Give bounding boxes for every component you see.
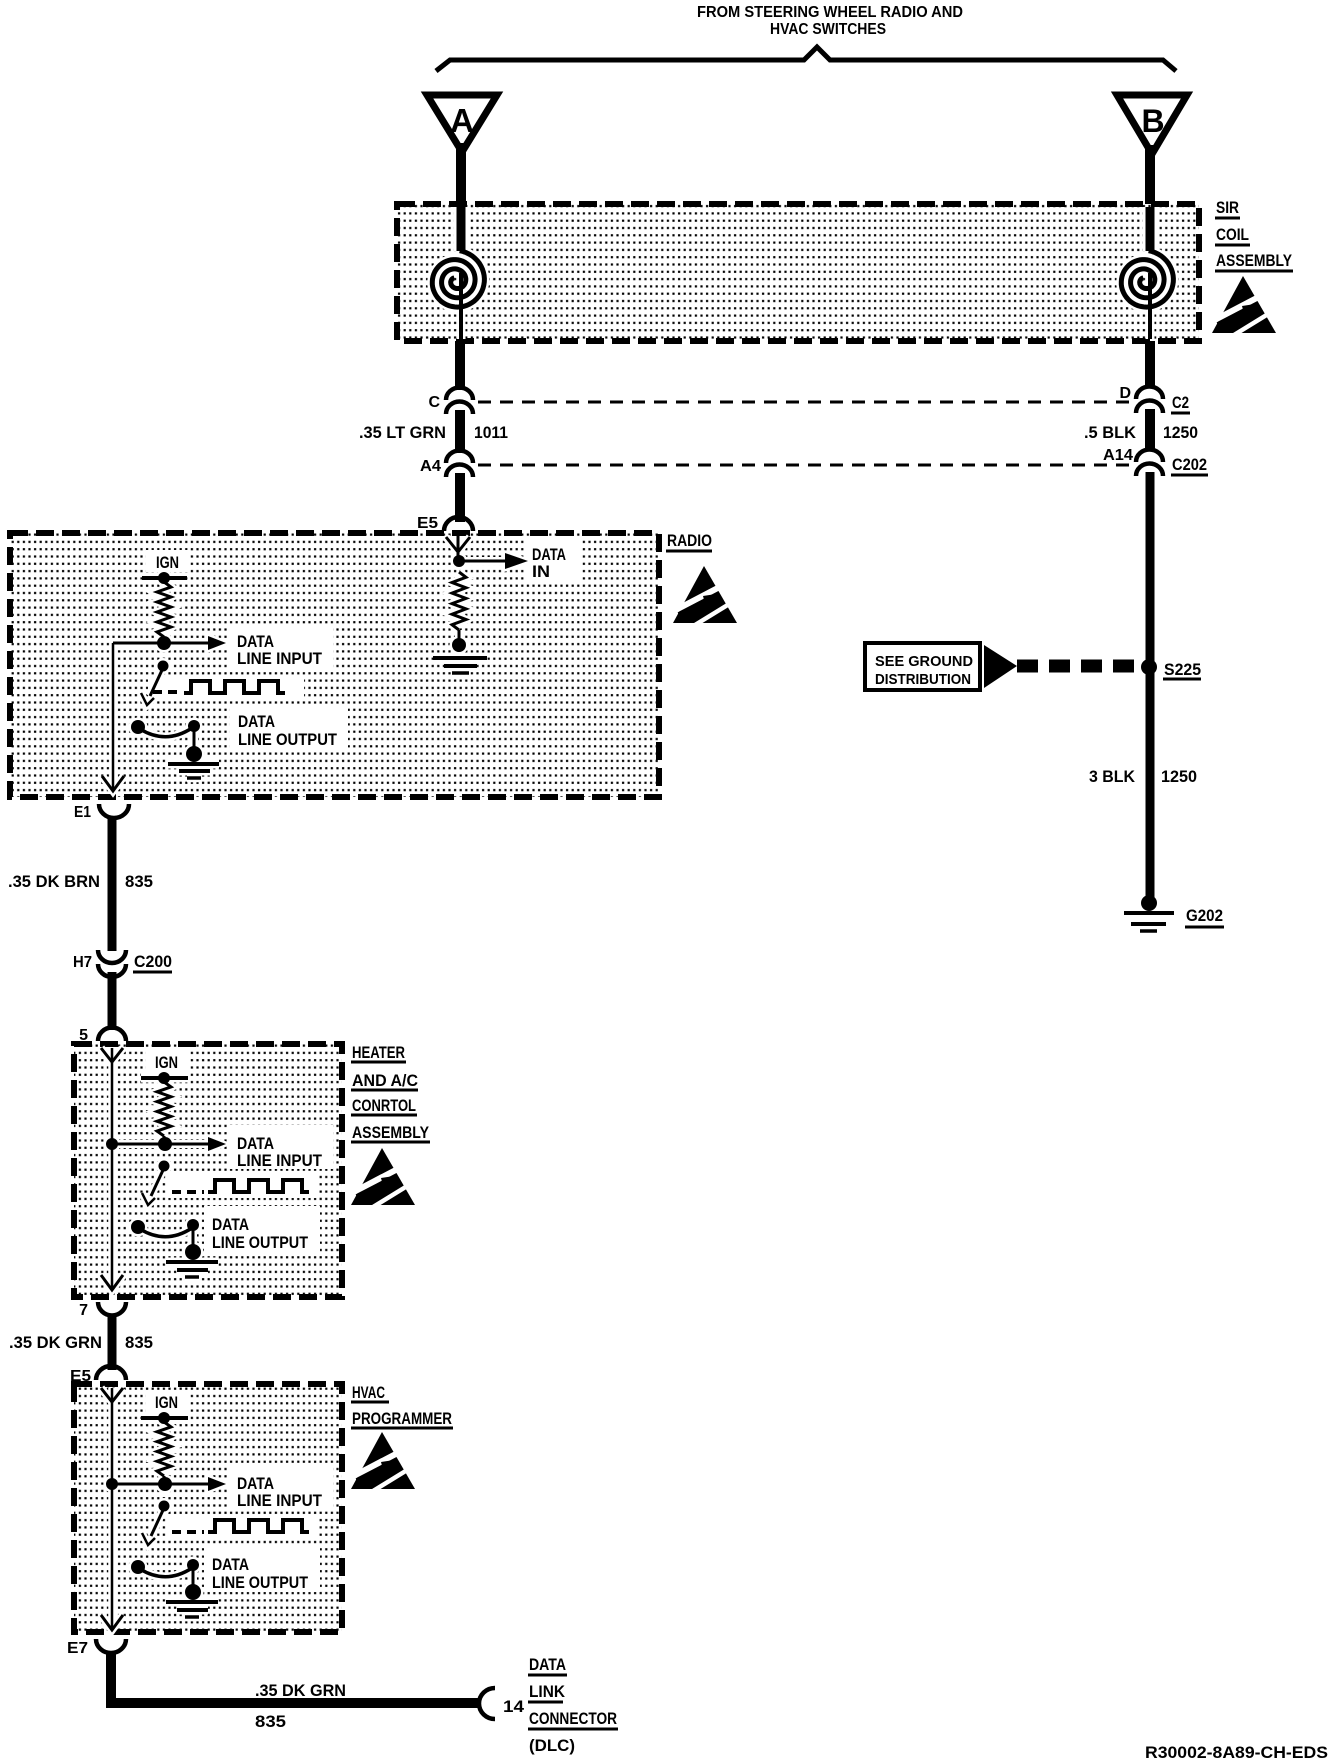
svg-text:DATA: DATA	[529, 1655, 566, 1674]
svg-text:C2: C2	[1172, 393, 1189, 412]
svg-text:LINE INPUT: LINE INPUT	[237, 649, 323, 668]
svg-text:835: 835	[125, 872, 153, 891]
svg-text:LINK: LINK	[529, 1682, 566, 1701]
svg-text:D: D	[1119, 385, 1131, 402]
svg-text:IGN: IGN	[155, 1393, 178, 1412]
svg-text:R30002-8A89-CH-EDS: R30002-8A89-CH-EDS	[1145, 1743, 1328, 1762]
svg-text:G202: G202	[1186, 906, 1223, 925]
svg-text:RADIO: RADIO	[667, 531, 712, 550]
svg-text:SEE GROUND: SEE GROUND	[875, 653, 973, 670]
svg-text:835: 835	[125, 1333, 153, 1352]
svg-text:B: B	[1141, 103, 1164, 139]
svg-text:LINE OUTPUT: LINE OUTPUT	[212, 1233, 309, 1252]
svg-text:IN: IN	[532, 562, 550, 581]
svg-text:IGN: IGN	[155, 1053, 178, 1072]
svg-text:DISTRIBUTION: DISTRIBUTION	[875, 671, 971, 688]
svg-text:14: 14	[503, 1697, 525, 1716]
svg-text:CONRTOL: CONRTOL	[352, 1096, 416, 1115]
svg-text:E1: E1	[74, 804, 91, 821]
svg-text:1011: 1011	[474, 423, 508, 442]
svg-text:LINE INPUT: LINE INPUT	[237, 1491, 323, 1510]
svg-text:835: 835	[255, 1712, 286, 1731]
svg-text:ASSEMBLY: ASSEMBLY	[1216, 251, 1293, 270]
svg-text:SIR: SIR	[1216, 198, 1239, 217]
svg-text:IGN: IGN	[156, 553, 179, 572]
svg-text:FROM STEERING WHEEL RADIO AND: FROM STEERING WHEEL RADIO AND	[697, 4, 963, 21]
svg-text:3 BLK: 3 BLK	[1089, 767, 1136, 786]
svg-text:LINE INPUT: LINE INPUT	[237, 1151, 323, 1170]
svg-text:CONNECTOR: CONNECTOR	[529, 1709, 617, 1728]
svg-text:.35 DK GRN: .35 DK GRN	[255, 1681, 346, 1700]
svg-text:E5: E5	[417, 515, 438, 532]
svg-text:A4: A4	[420, 458, 441, 475]
svg-text:COIL: COIL	[1216, 225, 1249, 244]
svg-text:LINE OUTPUT: LINE OUTPUT	[212, 1573, 309, 1592]
svg-text:HEATER: HEATER	[352, 1043, 405, 1062]
svg-text:HVAC SWITCHES: HVAC SWITCHES	[770, 21, 886, 38]
svg-text:C200: C200	[134, 952, 172, 971]
svg-text:H7: H7	[73, 954, 92, 971]
svg-text:E7: E7	[67, 1640, 88, 1657]
svg-text:DATA: DATA	[212, 1215, 249, 1234]
svg-text:HVAC: HVAC	[352, 1383, 385, 1402]
svg-text:DATA: DATA	[212, 1555, 249, 1574]
svg-text:A14: A14	[1103, 447, 1133, 464]
svg-text:1250: 1250	[1161, 767, 1197, 786]
svg-text:ASSEMBLY: ASSEMBLY	[352, 1123, 430, 1142]
svg-text:(DLC): (DLC)	[529, 1736, 575, 1755]
svg-text:.35 DK GRN: .35 DK GRN	[9, 1333, 102, 1352]
svg-text:1250: 1250	[1163, 423, 1198, 442]
svg-text:.35 DK BRN: .35 DK BRN	[8, 872, 100, 891]
svg-text:AND A/C: AND A/C	[352, 1071, 418, 1090]
svg-text:.5 BLK: .5 BLK	[1084, 423, 1137, 442]
svg-text:PROGRAMMER: PROGRAMMER	[352, 1409, 452, 1428]
svg-text:.35 LT GRN: .35 LT GRN	[359, 423, 446, 442]
svg-text:C202: C202	[1172, 455, 1207, 474]
svg-text:S225: S225	[1164, 660, 1201, 679]
svg-text:A: A	[450, 102, 474, 139]
svg-text:C: C	[428, 394, 440, 411]
svg-text:7: 7	[79, 1302, 88, 1319]
svg-text:DATA: DATA	[238, 712, 275, 731]
svg-text:LINE OUTPUT: LINE OUTPUT	[238, 730, 338, 749]
